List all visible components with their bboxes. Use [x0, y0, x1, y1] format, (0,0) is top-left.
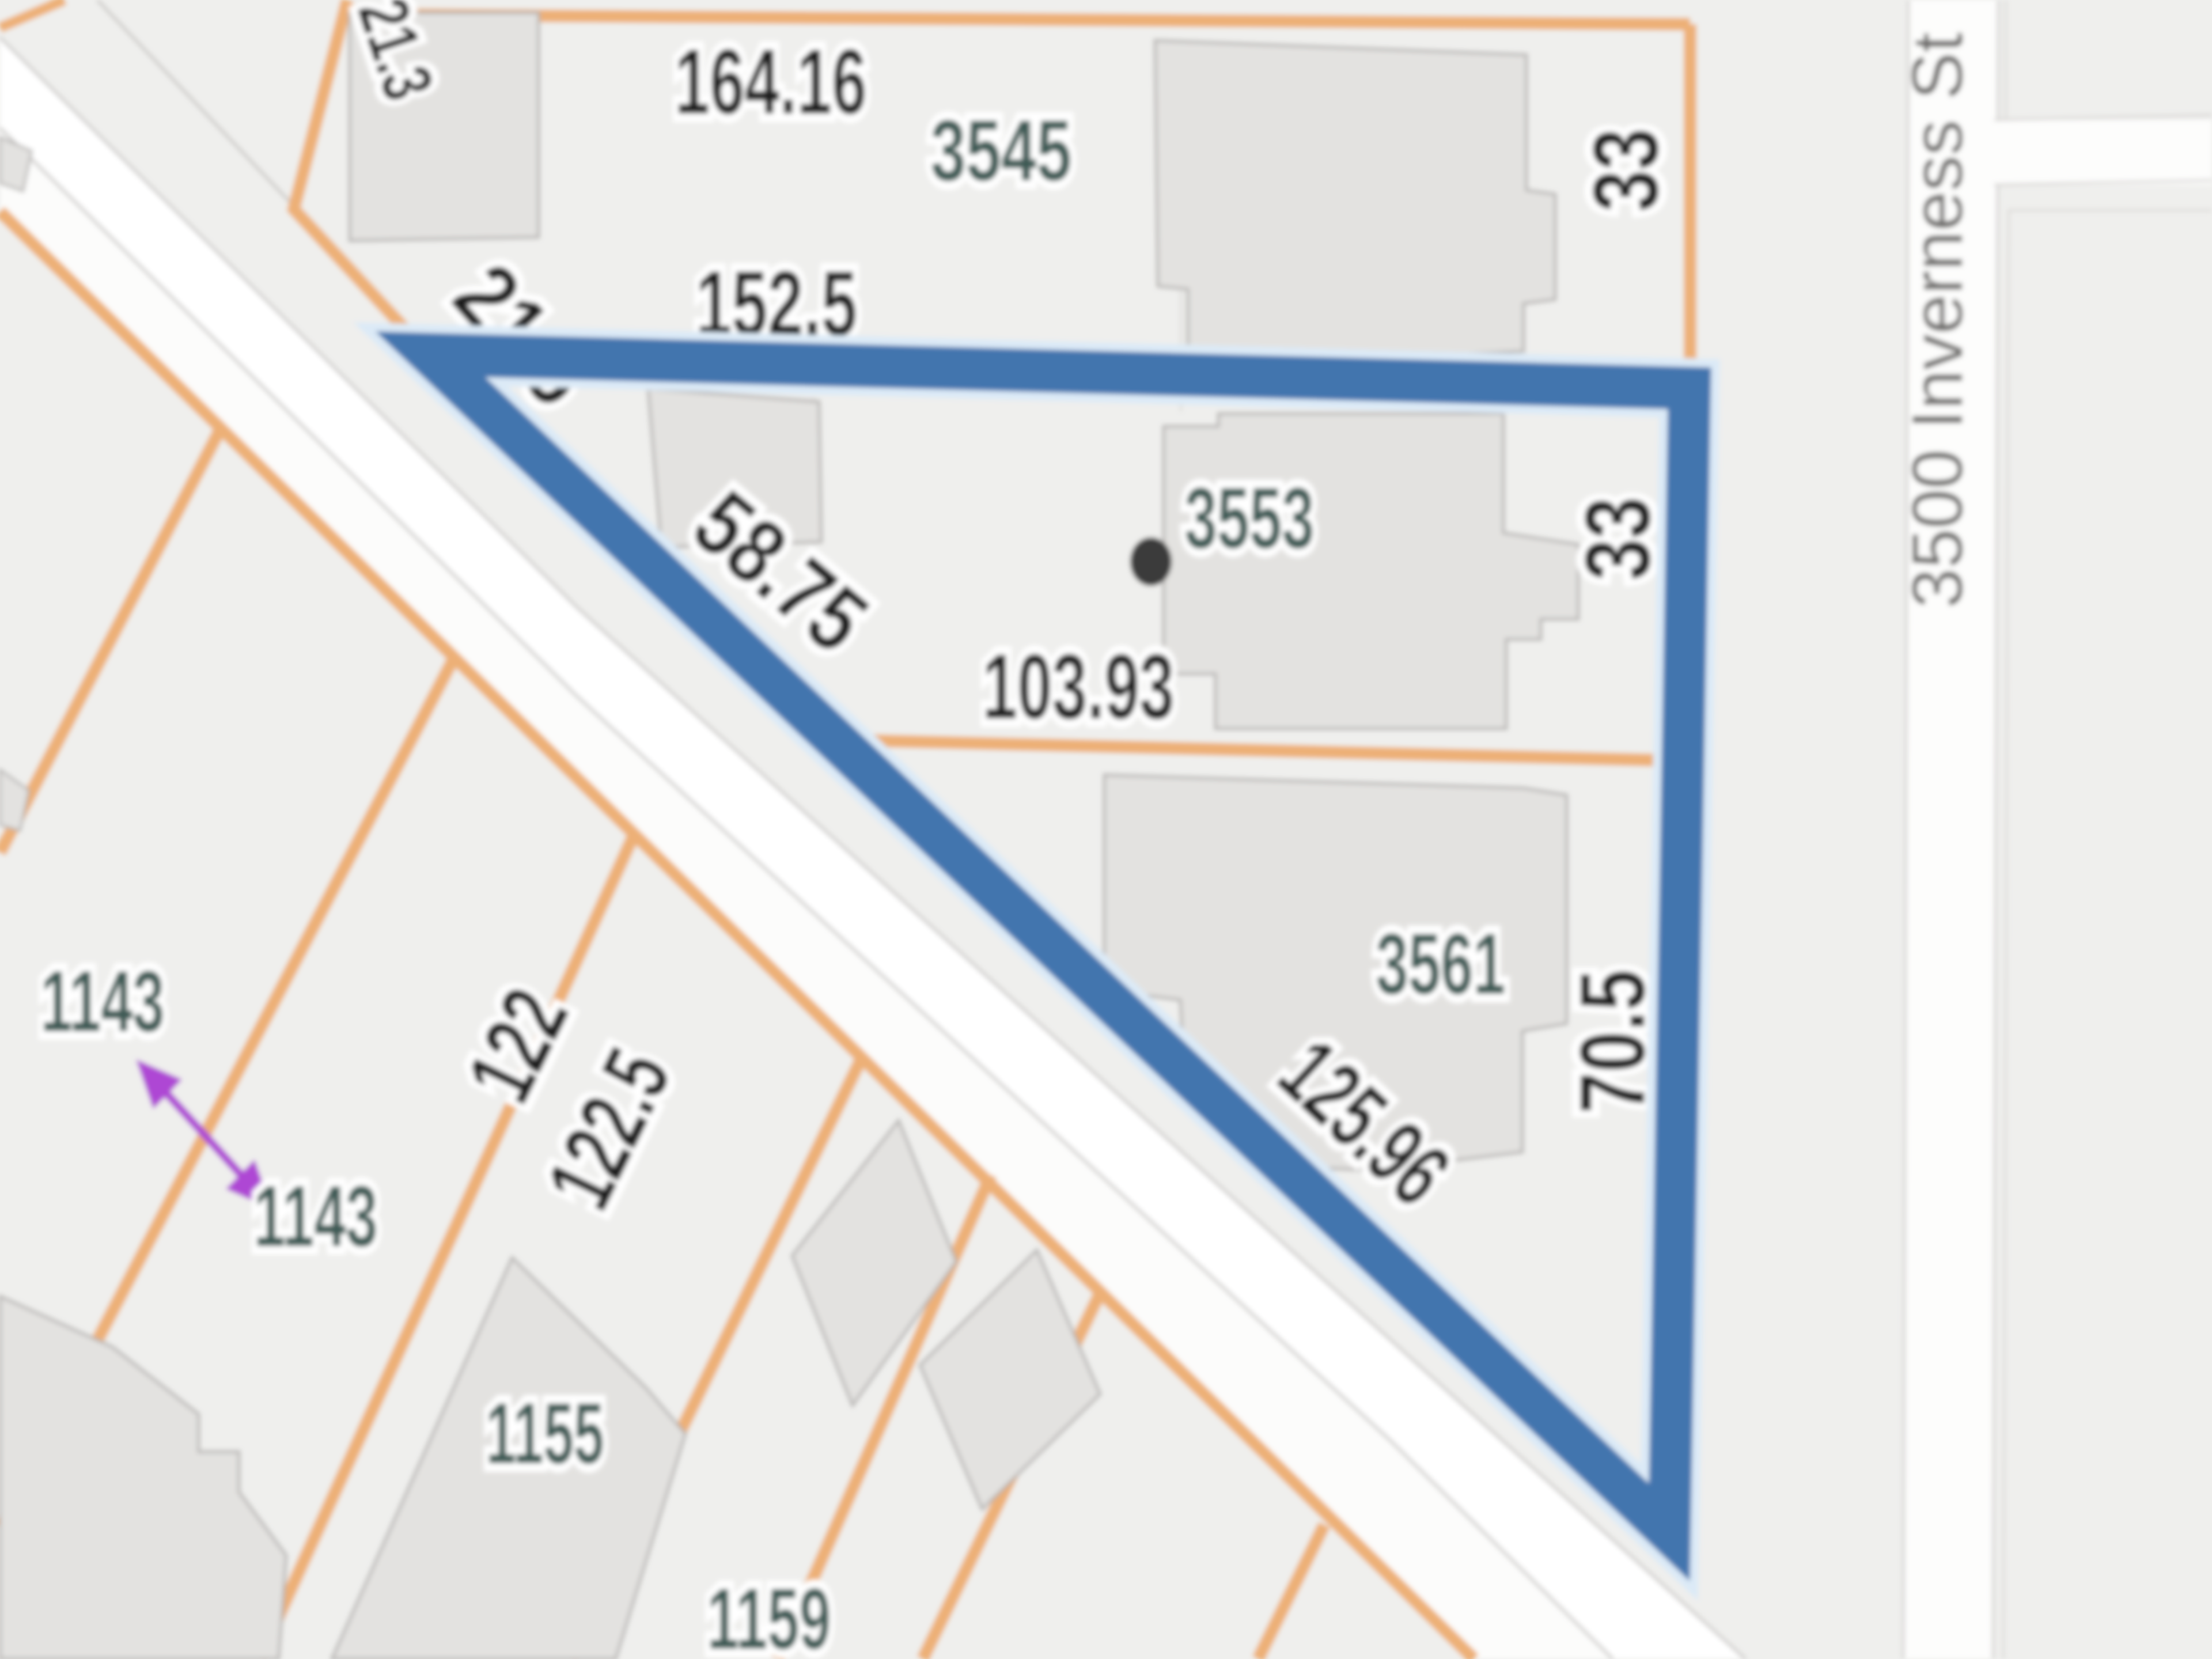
svg-text:33: 33: [1574, 128, 1677, 212]
svg-text:164.16: 164.16: [675, 30, 867, 133]
svg-text:1155: 1155: [486, 1385, 604, 1482]
svg-text:103.93: 103.93: [983, 635, 1175, 738]
svg-text:33: 33: [1566, 497, 1669, 581]
svg-text:1143: 1143: [254, 1168, 378, 1264]
svg-text:3500 Inverness St: 3500 Inverness St: [1898, 32, 1978, 608]
svg-text:3545: 3545: [931, 102, 1072, 199]
svg-text:1143: 1143: [41, 953, 165, 1050]
svg-text:1159: 1159: [707, 1570, 831, 1659]
svg-text:3561: 3561: [1376, 915, 1506, 1012]
svg-text:3553: 3553: [1185, 469, 1315, 566]
